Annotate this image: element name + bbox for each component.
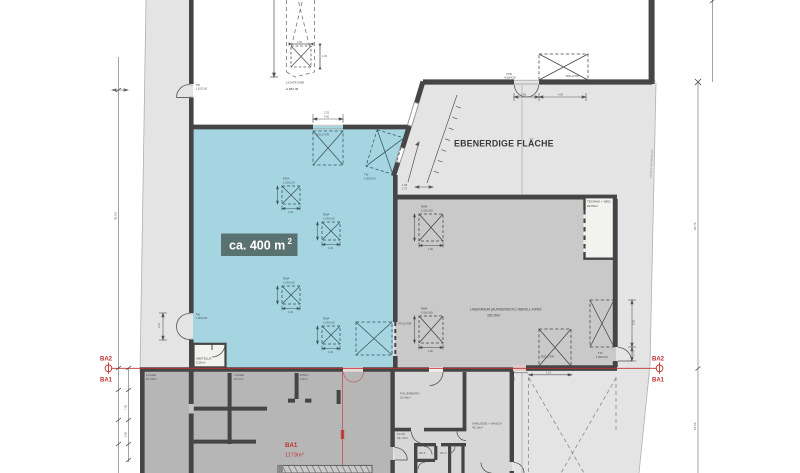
svg-text:LAGERRAUM (AUFMERBOCK) / ABR: LAGERRAUM (AUFMERBOCK) / ABROLL-KIPER — [470, 308, 542, 312]
svg-text:24.2m²: 24.2m² — [234, 377, 243, 381]
svg-text:2.86: 2.86 — [521, 93, 527, 97]
svg-text:5.80: 5.80 — [124, 431, 128, 437]
svg-text:2.25: 2.25 — [324, 111, 330, 115]
svg-text:0.70: 0.70 — [632, 350, 636, 356]
svg-text:LICHTE KMD: LICHTE KMD — [286, 81, 305, 85]
svg-text:WC-H: WC-H — [440, 452, 447, 455]
svg-text:4.50: 4.50 — [324, 115, 330, 119]
svg-text:1.00: 1.00 — [297, 40, 303, 44]
svg-text:2.35: 2.35 — [632, 319, 636, 325]
svg-text:325.08m²: 325.08m² — [487, 314, 500, 318]
svg-text:1.10/2.00: 1.10/2.00 — [196, 87, 208, 91]
svg-text:20.96m²: 20.96m² — [400, 396, 411, 400]
svg-text:45.16m²: 45.16m² — [472, 426, 483, 430]
svg-text:WC-D: WC-D — [419, 452, 426, 455]
svg-text:91.56m²: 91.56m² — [146, 377, 157, 381]
svg-text:ROLLTOR: ROLLTOR — [399, 322, 412, 326]
svg-text:4.50: 4.50 — [558, 93, 564, 97]
svg-text:1.00/1.00: 1.00/1.00 — [323, 321, 335, 325]
svg-text:4.50/4.50: 4.50/4.50 — [504, 76, 516, 80]
svg-text:1.00: 1.00 — [328, 247, 333, 250]
svg-text:10.55: 10.55 — [693, 422, 697, 430]
svg-text:8.3m²: 8.3m² — [300, 377, 308, 381]
svg-text:1.00: 1.00 — [322, 54, 328, 58]
svg-text:1173m²: 1173m² — [285, 453, 304, 459]
svg-text:1.00: 1.00 — [288, 211, 293, 214]
svg-text:BA1: BA1 — [285, 442, 298, 449]
svg-text:1.00/1.00: 1.00/1.00 — [323, 217, 335, 221]
svg-text:5.28m²: 5.28m² — [196, 361, 205, 365]
svg-text:H 883.38: H 883.38 — [286, 87, 299, 91]
svg-text:TECHNIK + WED: TECHNIK + WED — [587, 200, 611, 204]
svg-text:1.00: 1.00 — [428, 350, 433, 353]
svg-text:2: 2 — [288, 237, 293, 246]
svg-text:BA1: BA1 — [652, 378, 665, 384]
svg-text:1.00/1.00: 1.00/1.00 — [283, 181, 295, 185]
svg-text:BA2: BA2 — [652, 357, 665, 363]
svg-text:ROLLTOR: ROLLTOR — [316, 133, 329, 137]
svg-text:BA2: BA2 — [100, 357, 113, 363]
svg-text:ca. 400 m: ca. 400 m — [229, 239, 285, 253]
svg-text:1.00: 1.00 — [288, 311, 293, 314]
svg-text:ROLLTOR: ROLLTOR — [566, 74, 579, 78]
svg-text:1.70: 1.70 — [402, 186, 408, 190]
svg-text:1.00/1.00: 1.00/1.00 — [421, 209, 433, 213]
svg-text:20.84m²: 20.84m² — [587, 204, 598, 208]
svg-text:1.91: 1.91 — [157, 322, 161, 328]
svg-text:EBENERDIGE FLÄCHE: EBENERDIGE FLÄCHE — [454, 139, 554, 149]
svg-text:ROLLTOR: ROLLTOR — [541, 355, 554, 359]
svg-text:BA1: BA1 — [100, 378, 113, 384]
svg-text:1.90/2.00: 1.90/2.00 — [196, 316, 208, 320]
svg-text:1.80/2.00: 1.80/2.00 — [596, 355, 608, 359]
svg-text:40.50: 40.50 — [114, 212, 118, 220]
svg-text:28.75: 28.75 — [693, 222, 697, 230]
svg-text:1.00/1.00: 1.00/1.00 — [283, 281, 295, 285]
svg-text:1.80/2.00: 1.80/2.00 — [364, 177, 376, 181]
svg-text:1.10: 1.10 — [546, 370, 552, 374]
svg-text:1.00: 1.00 — [428, 248, 433, 251]
svg-text:1.00/1.00: 1.00/1.00 — [421, 311, 433, 315]
svg-text:7.45: 7.45 — [124, 404, 128, 410]
svg-text:1.00: 1.00 — [328, 351, 333, 354]
svg-text:34.74m²: 34.74m² — [397, 436, 408, 440]
